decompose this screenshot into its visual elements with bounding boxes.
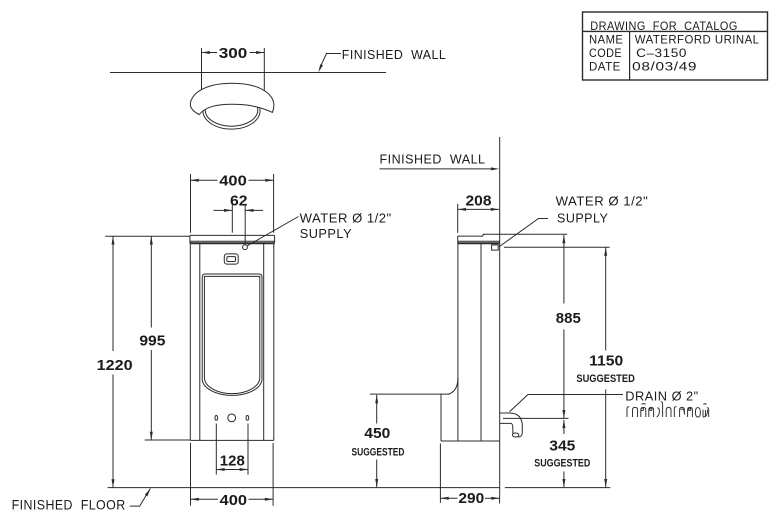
svg-text:345: 345 [549,438,575,455]
svg-text:DATE: DATE [589,60,621,74]
svg-text:885: 885 [556,310,581,327]
svg-text:1150: 1150 [589,353,623,370]
svg-text:DRAWING FOR CATALOG: DRAWING FOR CATALOG [590,19,738,33]
svg-text:450: 450 [364,425,390,442]
svg-text:400: 400 [220,492,248,509]
svg-text:62: 62 [230,193,248,210]
svg-text:SUPPLY: SUPPLY [557,211,608,226]
svg-text:995: 995 [139,332,165,349]
svg-text:CODE: CODE [589,46,622,60]
svg-text:SUGGESTED: SUGGESTED [576,373,634,385]
svg-text:WATER Ø 1/2": WATER Ø 1/2" [556,194,649,209]
svg-text:08/03/49: 08/03/49 [632,60,697,74]
svg-text:1220: 1220 [97,357,133,374]
svg-text:208: 208 [466,193,492,210]
svg-text:290: 290 [458,490,484,507]
svg-text:400: 400 [219,172,247,189]
svg-text:FINISHED WALL: FINISHED WALL [342,47,446,62]
svg-text:NAME: NAME [589,32,623,46]
svg-text:FINISHED FLOOR: FINISHED FLOOR [12,497,126,513]
svg-text:300: 300 [219,45,248,62]
svg-text:C–3150: C–3150 [636,46,687,60]
svg-text:SUGGESTED: SUGGESTED [352,447,405,459]
svg-text:SUGGESTED: SUGGESTED [534,458,590,470]
svg-text:DRAIN Ø 2": DRAIN Ø 2" [625,389,698,404]
svg-text:SUPPLY: SUPPLY [300,226,352,241]
svg-text:WATER Ø 1/2": WATER Ø 1/2" [300,210,392,225]
svg-text:FINISHED WALL: FINISHED WALL [380,151,486,166]
svg-text:WATERFORD URINAL: WATERFORD URINAL [635,32,760,46]
svg-text:128: 128 [220,453,245,470]
